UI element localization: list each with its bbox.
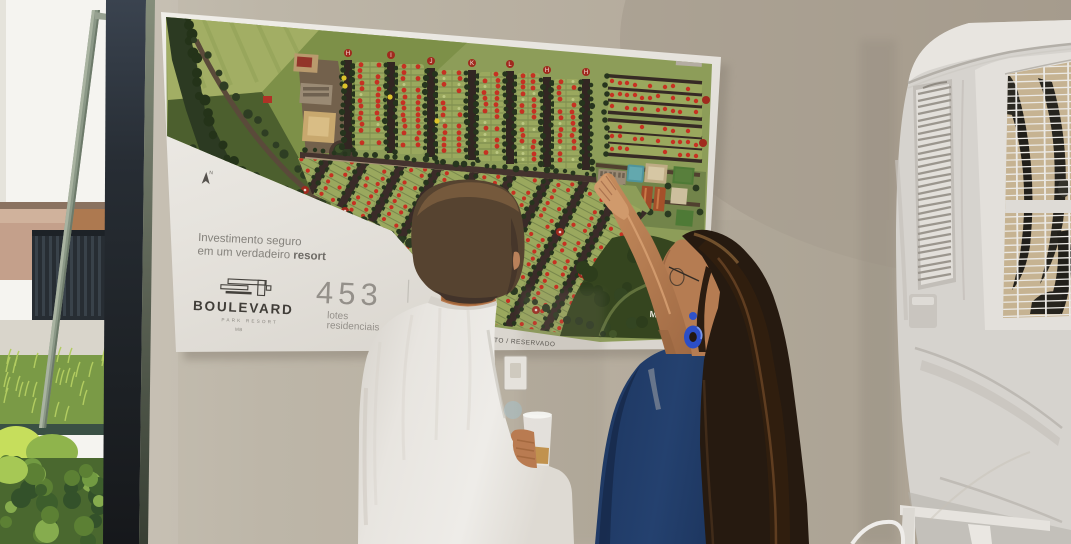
svg-text:H: H xyxy=(584,70,588,76)
svg-text:H: H xyxy=(545,68,549,74)
svg-text:N: N xyxy=(209,170,213,176)
svg-text:J: J xyxy=(430,59,433,65)
svg-text:H: H xyxy=(346,51,350,57)
svg-text:K: K xyxy=(470,61,474,67)
svg-text:residenciais: residenciais xyxy=(326,320,379,333)
svg-text:MB: MB xyxy=(235,327,243,332)
svg-text:453: 453 xyxy=(315,275,383,313)
